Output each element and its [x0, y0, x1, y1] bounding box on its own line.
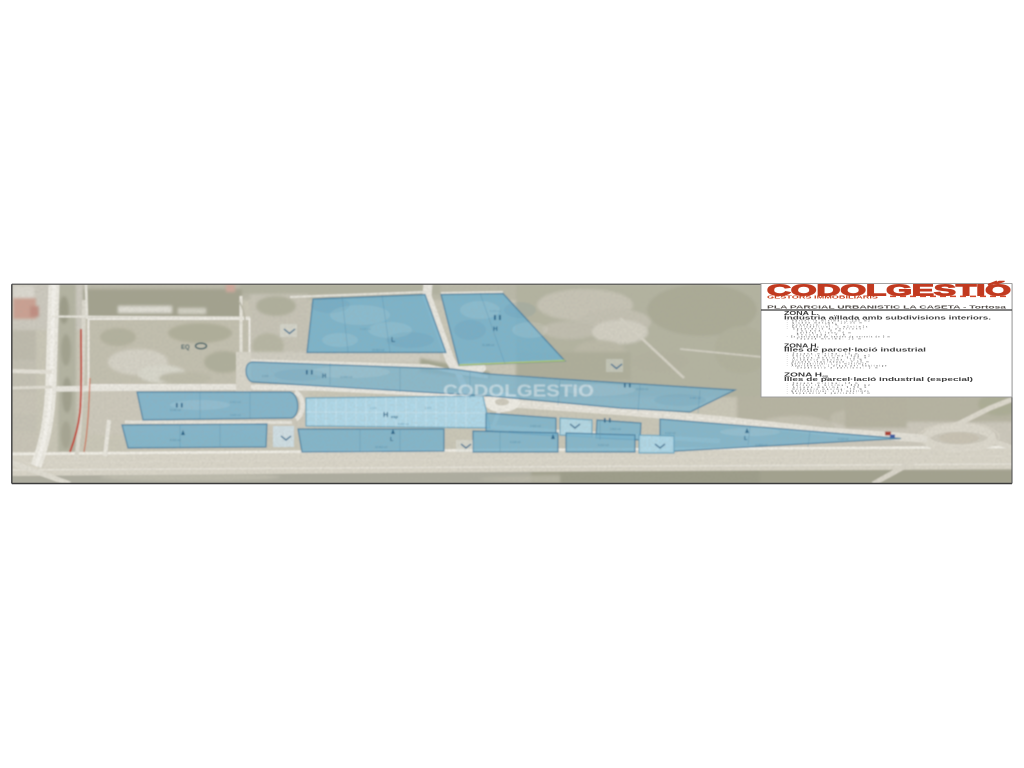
svg-text:Illes de parcel·lació industri: Illes de parcel·lació industrial (especi… [784, 377, 974, 383]
svg-text:Separació a partions: 3 m: Separació a partions: 3 m [797, 366, 878, 369]
svg-text:GESTORS IMMOBILIARIS: GESTORS IMMOBILIARIS [767, 295, 878, 300]
